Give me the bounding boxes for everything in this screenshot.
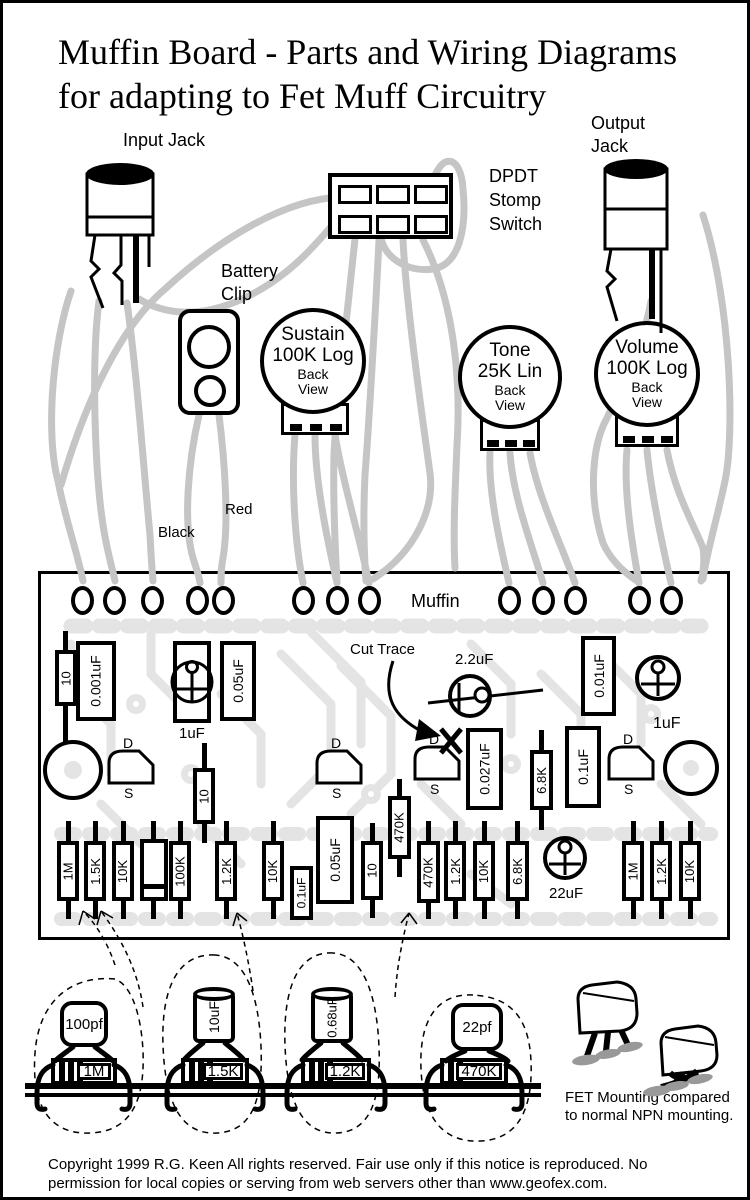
page-title-line2: for adapting to Fet Muff Circuitry: [58, 75, 546, 117]
output-jack: [604, 159, 668, 333]
fet1-drain-label: D: [123, 735, 133, 751]
dpdt-label-3: Switch: [489, 214, 542, 235]
fet-mounting-caption-2: to normal NPN mounting.: [565, 1107, 733, 1124]
board-hole: [326, 586, 349, 615]
cap-0.05uF-bottom: 0.05uF: [316, 816, 354, 904]
board-hole: [103, 586, 126, 615]
resistor-1.2K: 1.2K: [444, 841, 466, 901]
sub-resistor-1.2K: 1.2K: [301, 1058, 371, 1085]
resistor-10-mid: 10: [193, 768, 215, 824]
cap-0.001uF: 0.001uF: [76, 641, 116, 721]
cap-22uF-label: 22uF: [549, 885, 583, 902]
tone-pot: Tone 25K Lin Back View: [458, 325, 562, 429]
board-hole: [358, 586, 381, 615]
sustain-pot-view1: Back: [297, 367, 328, 382]
board-hole: [498, 586, 521, 615]
cap-1uF-electrolytic-right: [635, 655, 681, 701]
resistor-1M: 1M: [622, 841, 644, 901]
fet2-gate-label: G: [332, 759, 343, 775]
cap-22uF-electrolytic: [543, 836, 587, 880]
ground-rails: [25, 1086, 541, 1095]
mounting-hole-left: [43, 740, 103, 800]
copyright-line1: Copyright 1999 R.G. Keen All rights rese…: [48, 1156, 647, 1173]
input-jack: [86, 163, 154, 308]
tone-pot-view1: Back: [494, 383, 525, 398]
copyright-line2: permission for local copies or serving f…: [48, 1175, 607, 1192]
sustain-pot: Sustain 100K Log Back View: [260, 308, 366, 414]
tone-pot-name: Tone: [489, 341, 530, 362]
battery-clip-snap-small: [194, 375, 226, 407]
fet2-source-label: S: [332, 785, 341, 801]
npn-pin-b: B: [604, 995, 613, 1010]
board-name-label: Muffin: [411, 591, 460, 612]
cap-1uF-electrolytic: [173, 641, 211, 723]
dpdt-lug: [376, 185, 410, 204]
dpdt-lug: [338, 215, 372, 234]
sub-resistor-1.5K: 1.5K: [181, 1058, 249, 1085]
board-hole: [292, 586, 315, 615]
volume-pot-view1: Back: [631, 380, 662, 395]
cap-1uF-label: 1uF: [179, 725, 205, 742]
resistor-6.8K: 6.8K: [530, 750, 553, 810]
resistor-10K: 10K: [112, 841, 134, 901]
fet1-source-label: S: [124, 785, 133, 801]
fet3-gate-label: G: [430, 755, 441, 771]
volume-pot-value: 100K Log: [606, 359, 687, 380]
volume-pot-view2: View: [632, 395, 662, 410]
red-wire-label: Red: [225, 501, 253, 518]
resistor-1M: 1M: [57, 841, 79, 901]
board-hole: [628, 586, 651, 615]
sustain-pot-name: Sustain: [281, 325, 344, 346]
fet-pin-d: D: [665, 1041, 674, 1056]
sustain-pot-view2: View: [298, 382, 328, 397]
black-wire-label: Black: [158, 524, 195, 541]
sustain-pot-value: 100K Log: [272, 346, 353, 367]
dpdt-lug: [338, 185, 372, 204]
sub-cap-100pf: 100pf: [60, 1001, 108, 1047]
cap-0.01uF: 0.01uF: [581, 636, 616, 716]
board-hole: [71, 586, 94, 615]
board-hole: [660, 586, 683, 615]
fet3-drain-label: D: [429, 731, 439, 747]
diagram-page: Muffin Board - Parts and Wiring Diagrams…: [0, 0, 750, 1200]
board-hole: [212, 586, 235, 615]
dpdt-lug: [376, 215, 410, 234]
sub-cap-10uF-top: [193, 987, 235, 1001]
battery-clip-snap-large: [187, 325, 231, 369]
dpdt-lug: [414, 185, 448, 204]
resistor-470K: 470K: [417, 841, 440, 903]
cut-trace-label: Cut Trace: [350, 641, 415, 658]
fet2-drain-label: D: [331, 735, 341, 751]
dpdt-label-2: Stomp: [489, 190, 541, 211]
volume-pot: Volume 100K Log Back View: [594, 321, 700, 427]
mounting-hole-right: [663, 740, 719, 796]
resistor-470K-raised: 470K: [388, 796, 411, 859]
board-hole: [186, 586, 209, 615]
cap-0.027uF: 0.027uF: [466, 728, 503, 810]
resistor-10: 10: [55, 650, 77, 706]
dpdt-lug: [414, 215, 448, 234]
resistor-1.2K: 1.2K: [215, 841, 237, 901]
npn-pin-e: E: [589, 999, 598, 1014]
component-unlabeled: [140, 839, 168, 901]
resistor-100K: 100K: [169, 841, 191, 901]
output-jack-label-1: Output: [591, 113, 645, 134]
fet-pin-g: G: [693, 1049, 703, 1064]
cap-2.2uF-electrolytic: [448, 674, 492, 718]
cap-2.2uF-label: 2.2uF: [455, 651, 493, 668]
resistor-10-bottom: 10: [361, 841, 383, 900]
fet-pin-s: S: [679, 1045, 688, 1060]
board-hole: [532, 586, 555, 615]
fet4-source-label: S: [624, 781, 633, 797]
resistor-10K: 10K: [262, 841, 284, 901]
page-title-line1: Muffin Board - Parts and Wiring Diagrams: [58, 31, 677, 73]
battery-clip-label-2: Clip: [221, 284, 252, 305]
cap-1uF-right-label: 1uF: [653, 715, 681, 733]
cap-0.1uF-mid: 0.1uF: [565, 726, 601, 808]
output-jack-label-2: Jack: [591, 136, 628, 157]
battery-clip-label-1: Battery: [221, 261, 278, 282]
sub-cap-22pf: 22pf: [451, 1003, 503, 1051]
dpdt-label-1: DPDT: [489, 166, 538, 187]
sub-cap-0.68uF-top: [311, 987, 353, 1001]
board-hole: [141, 586, 164, 615]
cap-0.05uF: 0.05uF: [220, 641, 256, 721]
resistor-1.2K: 1.2K: [650, 841, 672, 901]
board-hole: [564, 586, 587, 615]
resistor-1.5K: 1.5K: [84, 841, 106, 901]
sub-resistor-1M: 1M: [51, 1058, 117, 1085]
sub-resistor-470K: 470K: [440, 1058, 508, 1085]
cap-0.1uF-small: 0.1uF: [290, 866, 313, 920]
fet-mounting-caption-1: FET Mounting compared: [565, 1089, 730, 1106]
fet4-gate-label: G: [624, 755, 635, 771]
fet3-source-label: S: [430, 781, 439, 797]
tone-pot-view2: View: [495, 398, 525, 413]
fet1-gate-label: G: [124, 759, 135, 775]
npn-pin-c: C: [619, 991, 628, 1006]
input-jack-label: Input Jack: [123, 130, 205, 151]
volume-pot-name: Volume: [615, 338, 678, 359]
resistor-10K: 10K: [473, 841, 495, 901]
tone-pot-value: 25K Lin: [478, 362, 542, 383]
resistor-10K: 10K: [679, 841, 701, 901]
resistor-6.8K: 6.8K: [506, 841, 529, 901]
fet4-drain-label: D: [623, 731, 633, 747]
dpdt-stomp-switch: [328, 173, 453, 239]
